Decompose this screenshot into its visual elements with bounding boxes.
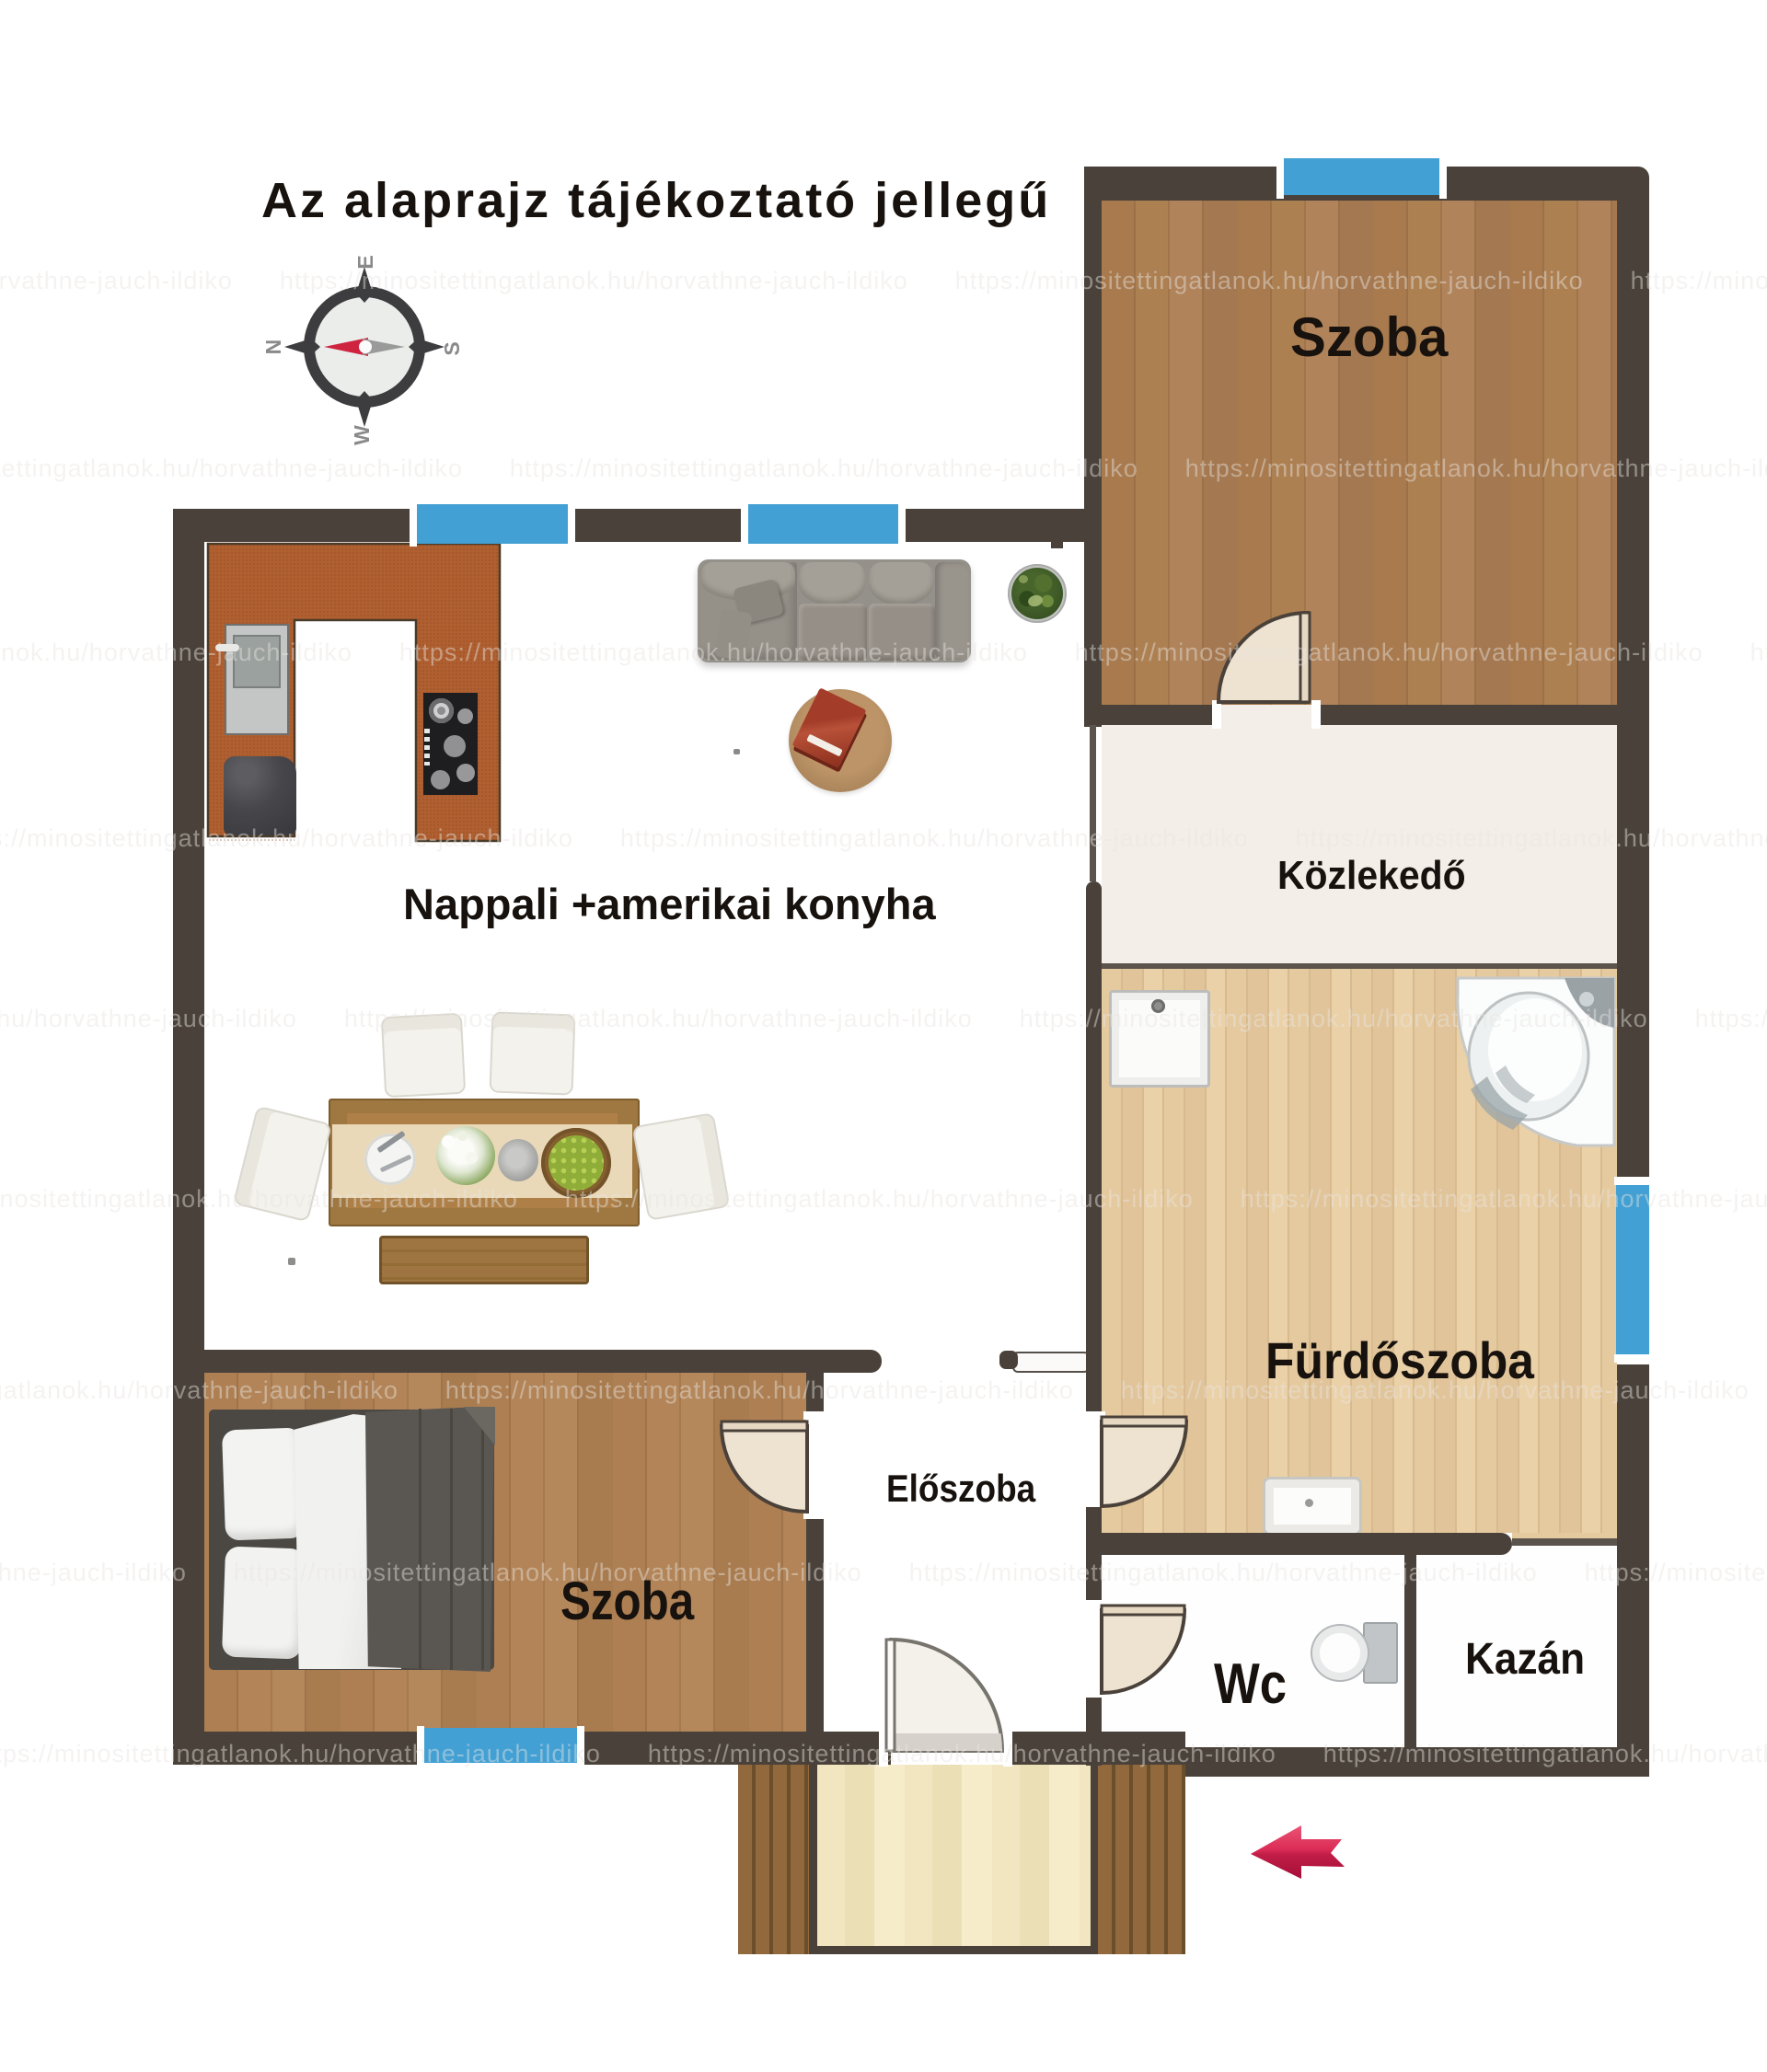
svg-text:N: N (261, 340, 285, 355)
svg-text:S: S (440, 341, 464, 355)
svg-text:W: W (350, 425, 374, 445)
